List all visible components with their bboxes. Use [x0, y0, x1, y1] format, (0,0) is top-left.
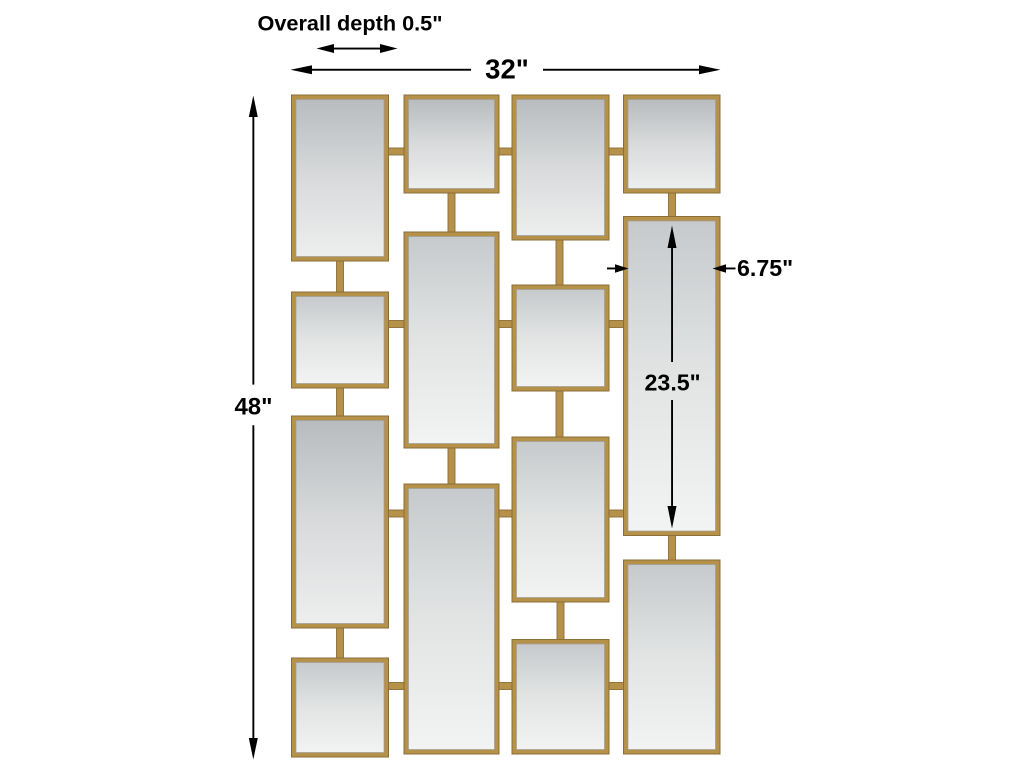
svg-text:32": 32" — [485, 54, 529, 85]
svg-text:48": 48" — [234, 394, 272, 421]
svg-text:6.75": 6.75" — [737, 255, 793, 281]
svg-text:Overall depth 0.5": Overall depth 0.5" — [257, 11, 442, 36]
svg-text:23.5": 23.5" — [645, 370, 701, 396]
